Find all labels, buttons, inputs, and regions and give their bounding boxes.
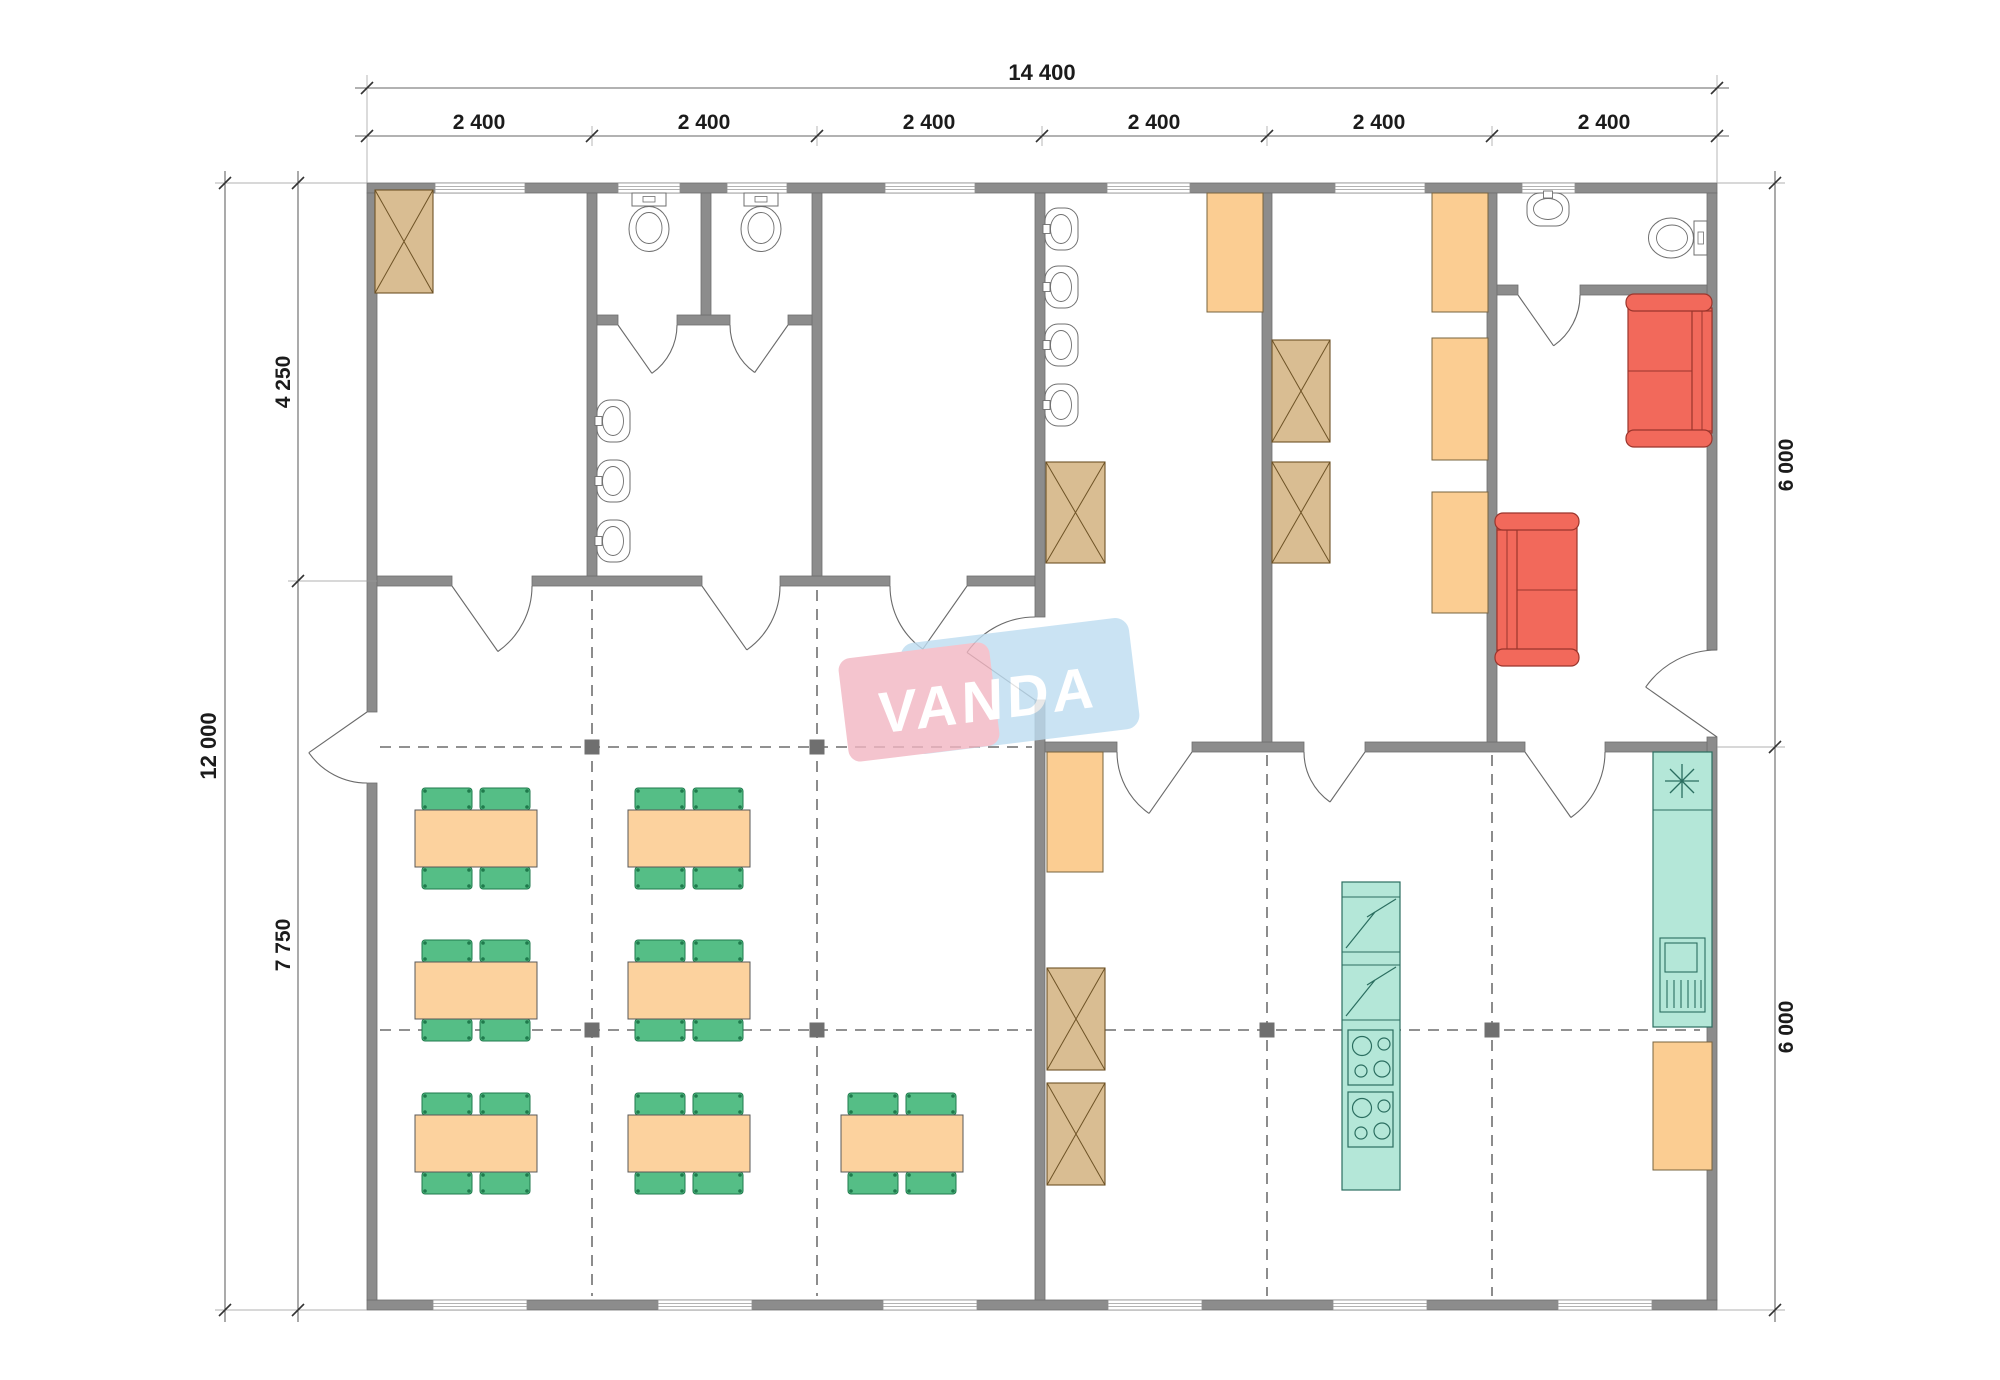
- dining-set: [415, 1093, 537, 1194]
- chair-icon: [480, 1093, 530, 1115]
- sofa-top-view-icon: [1495, 513, 1579, 666]
- grid-marker-icon: [1485, 1023, 1500, 1038]
- chair-icon: [422, 867, 472, 889]
- door-leaf: [1330, 752, 1365, 802]
- wall-segment: [367, 1300, 1717, 1310]
- chair-icon: [480, 1019, 530, 1041]
- dim-top-total: 14 400: [1008, 60, 1075, 85]
- door-leaf: [755, 325, 788, 373]
- chair-icon: [693, 1019, 743, 1041]
- window-icon: [658, 1300, 752, 1310]
- door-leaf: [309, 712, 367, 753]
- wall-segment: [1497, 285, 1518, 295]
- wall-segment: [1045, 742, 1117, 752]
- locker-icon: [1432, 193, 1488, 312]
- wall-segment: [377, 576, 452, 586]
- wall-segment: [812, 193, 822, 576]
- toilet-icon: [1649, 218, 1708, 258]
- window-icon: [883, 1300, 977, 1310]
- door-arc: [1571, 752, 1605, 818]
- dim-bay-5: 2 400: [1353, 111, 1406, 134]
- dim-bay-6: 2 400: [1578, 111, 1631, 134]
- wall-segment: [1192, 742, 1304, 752]
- chair-icon: [693, 788, 743, 810]
- window-icon: [1107, 183, 1190, 193]
- chair-icon: [693, 940, 743, 962]
- wall-segment: [367, 783, 377, 1300]
- door-leaf: [618, 325, 652, 373]
- chair-icon: [693, 1172, 743, 1194]
- window-icon: [618, 183, 680, 193]
- kitchen-sink-star-icon: [1665, 764, 1699, 798]
- chair-icon: [422, 788, 472, 810]
- wardrobe-icon: [375, 190, 433, 293]
- wall-segment: [587, 193, 597, 576]
- sink-icon: [595, 400, 630, 442]
- floor-plan-canvas: VANDA: [0, 0, 2000, 1380]
- locker-icon: [1432, 492, 1488, 613]
- door-leaf: [1518, 295, 1554, 346]
- dining-set: [415, 788, 537, 889]
- door-arc: [498, 586, 532, 652]
- dim-bay-1: 2 400: [453, 111, 506, 134]
- dining-set: [628, 940, 750, 1041]
- grid-marker-icon: [810, 1023, 825, 1038]
- wall-segment: [1605, 742, 1707, 752]
- chair-icon: [906, 1093, 956, 1115]
- sink-icon: [1043, 266, 1078, 308]
- door-arc: [1304, 752, 1330, 802]
- window-icon: [1335, 183, 1425, 193]
- chair-icon: [480, 788, 530, 810]
- chair-icon: [635, 1093, 685, 1115]
- door-arc: [747, 586, 780, 650]
- chair-icon: [480, 867, 530, 889]
- chair-icon: [422, 1172, 472, 1194]
- door-arc: [1646, 650, 1717, 687]
- dim-bay-3: 2 400: [903, 111, 956, 134]
- wardrobe-icon: [1272, 340, 1330, 442]
- kitchen-counter: [1653, 752, 1712, 1027]
- watermark: VANDA: [837, 616, 1141, 762]
- chair-icon: [635, 867, 685, 889]
- wall-segment: [780, 576, 890, 586]
- grid-marker-icon: [585, 740, 600, 755]
- toilet-icon: [741, 193, 781, 252]
- door-arc: [1117, 752, 1149, 813]
- dim-left-lower: 7 750: [272, 919, 295, 972]
- wall-segment: [1035, 700, 1045, 1300]
- wardrobe-icon: [1047, 1083, 1105, 1185]
- door-arc: [1554, 295, 1580, 346]
- locker-icon: [1653, 1042, 1712, 1170]
- sink-icon: [595, 460, 630, 502]
- chair-icon: [635, 940, 685, 962]
- dim-left-total: 12 000: [196, 712, 221, 779]
- dim-bay-4: 2 400: [1128, 111, 1181, 134]
- walls: [367, 183, 1717, 1310]
- door-arc: [652, 325, 677, 373]
- dining-set: [628, 788, 750, 889]
- chair-icon: [693, 1093, 743, 1115]
- dim-bay-2: 2 400: [678, 111, 731, 134]
- chair-icon: [848, 1172, 898, 1194]
- wall-segment: [701, 193, 711, 315]
- chair-icon: [422, 1093, 472, 1115]
- wall-segment: [1365, 742, 1525, 752]
- sink-icon: [1527, 191, 1569, 226]
- wall-segment: [367, 183, 1717, 193]
- wardrobe-icon: [1272, 462, 1330, 563]
- door-leaf: [1646, 687, 1717, 737]
- dim-left-upper: 4 250: [272, 356, 295, 409]
- chair-icon: [635, 1172, 685, 1194]
- toilet-icon: [629, 193, 669, 252]
- door-leaf: [452, 586, 498, 652]
- door-leaf: [1525, 752, 1571, 818]
- door-arc: [730, 325, 755, 373]
- dining-set: [628, 1093, 750, 1194]
- sink-icon: [1043, 384, 1078, 426]
- window-icon: [435, 183, 525, 193]
- sofas: [1495, 294, 1712, 666]
- chair-icon: [480, 1172, 530, 1194]
- wardrobe-icon: [1046, 462, 1105, 563]
- locker-icon: [1207, 193, 1263, 312]
- door-leaf: [702, 586, 747, 650]
- chair-icon: [848, 1093, 898, 1115]
- wardrobe-icon: [1047, 968, 1105, 1070]
- chair-icon: [480, 940, 530, 962]
- wall-segment: [967, 576, 1035, 586]
- grid-marker-icon: [1260, 1023, 1275, 1038]
- grid-marker-icon: [585, 1023, 600, 1038]
- window-icon: [1333, 1300, 1427, 1310]
- chair-icon: [635, 788, 685, 810]
- dim-right-upper: 6 000: [1775, 439, 1798, 492]
- locker-icon: [1047, 752, 1103, 872]
- dining-set: [415, 940, 537, 1041]
- chair-icon: [906, 1172, 956, 1194]
- wall-segment: [532, 576, 702, 586]
- chair-icon: [693, 867, 743, 889]
- dim-right-lower: 6 000: [1775, 1001, 1798, 1054]
- sink-icon: [1043, 208, 1078, 250]
- locker-icon: [1432, 338, 1488, 460]
- window-icon: [1558, 1300, 1652, 1310]
- window-icon: [727, 183, 787, 193]
- wall-segment: [788, 315, 812, 325]
- door-leaf: [1149, 752, 1192, 813]
- kitchen-island: [1342, 882, 1400, 1190]
- chair-icon: [635, 1019, 685, 1041]
- grid-marker-icon: [810, 740, 825, 755]
- door-arc: [890, 586, 923, 649]
- door-arc: [309, 753, 367, 783]
- chair-icon: [422, 1019, 472, 1041]
- chair-icon: [422, 940, 472, 962]
- sofa-top-view-icon: [1626, 294, 1712, 447]
- wall-segment: [677, 315, 730, 325]
- window-icon: [433, 1300, 527, 1310]
- sink-icon: [595, 520, 630, 562]
- dining-set: [841, 1093, 963, 1194]
- sink-icon: [1043, 324, 1078, 366]
- floor-plan-drawing: VANDA: [0, 0, 2000, 1380]
- window-icon: [1108, 1300, 1202, 1310]
- window-icon: [885, 183, 975, 193]
- wall-segment: [597, 315, 618, 325]
